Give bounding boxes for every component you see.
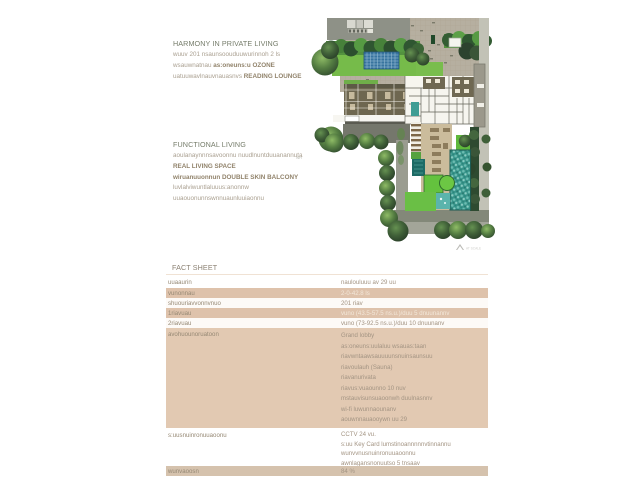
svg-text:WH: WH <box>296 156 302 160</box>
svg-text:AT SCALE: AT SCALE <box>466 247 481 251</box>
